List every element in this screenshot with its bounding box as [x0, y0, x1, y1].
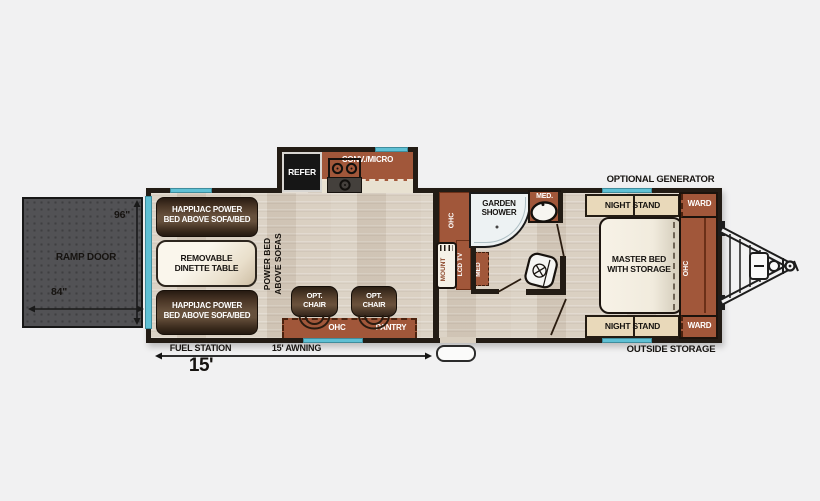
cooktop-base — [327, 177, 362, 193]
chair1-label-line1: OPT. — [292, 292, 337, 300]
kitchen-bottom-window — [303, 338, 363, 343]
awning-label: 15' AWNING — [254, 344, 339, 354]
optional-generator-label: OPTIONAL GENERATOR — [593, 175, 728, 185]
chair2-label-line2: CHAIR — [352, 301, 396, 309]
chair2-label-line1: OPT. — [352, 292, 396, 300]
wardrobe-top: WARD — [681, 194, 716, 218]
happijac-bed-bottom-label-line2: BED ABOVE SOFA/BED — [157, 312, 257, 321]
wardrobe-top-label: WARD — [683, 200, 716, 209]
shower-partition-wall-horizontal — [471, 289, 499, 294]
coupler-icon — [769, 261, 779, 271]
happijac-bed-bottom: HAPPIJAC POWER BED ABOVE SOFA/BED — [156, 290, 258, 335]
shower-partition-wall-vertical — [471, 246, 476, 294]
bedroom-bottom-window — [602, 338, 652, 343]
floorplan-canvas: RAMP DOOR 96" 84" REFER CONV./MICRO HAPP… — [0, 0, 820, 501]
optional-chair-1: OPT. CHAIR — [291, 286, 338, 317]
garden-shower-label-line2: SHOWER — [473, 209, 525, 218]
ramp-height-dimension: 96" — [96, 210, 130, 222]
dinette-label-line2: DINETTE TABLE — [158, 264, 255, 273]
night-stand-top: NIGHT STAND — [585, 194, 680, 217]
toilet-room-wall-horizontal — [526, 289, 566, 295]
night-stand-top-label: NIGHT STAND — [587, 201, 678, 210]
sink-wall — [558, 192, 563, 223]
lcd-tv-label: LCD TV — [457, 245, 470, 284]
fuel-station-label: FUEL STATION — [158, 344, 243, 354]
length-dimension-label: 15' — [176, 356, 226, 377]
outside-storage-label: OUTSIDE STORAGE — [606, 345, 736, 355]
refrigerator-label: REFER — [284, 168, 320, 177]
refrigerator: REFER — [282, 152, 322, 192]
night-stand-bottom-label: NIGHT STAND — [587, 322, 678, 331]
happijac-bed-top-label-line1: HAPPIJAC POWER — [157, 206, 257, 215]
power-bed-above-sofas-label: POWER BED ABOVE SOFAS — [262, 229, 286, 299]
wardrobe-bottom: WARD — [681, 315, 716, 337]
optional-chair-2: OPT. CHAIR — [351, 286, 397, 317]
slideout-window — [375, 147, 408, 152]
master-bed: MASTER BED WITH STORAGE — [599, 217, 683, 314]
chair1-label-line2: CHAIR — [292, 301, 337, 309]
happijac-bed-bottom-label-line1: HAPPIJAC POWER — [157, 302, 257, 311]
bathroom-ohc-label: OHC — [449, 201, 462, 241]
hitch-ball-icon — [786, 262, 795, 271]
entry-doorway-opening — [440, 337, 476, 343]
ramp-opening-strip — [145, 196, 152, 329]
ohc-kitchen-label: OHC — [324, 324, 350, 333]
sink-med-label: MED. — [530, 193, 559, 201]
garage-top-window — [170, 188, 212, 193]
master-bed-label-line1: MASTER BED — [601, 255, 677, 264]
trailer-hitch — [718, 221, 798, 310]
happijac-bed-top: HAPPIJAC POWER BED ABOVE SOFA/BED — [156, 197, 258, 237]
ramp-door-label: RAMP DOOR — [36, 252, 136, 263]
removable-dinette-table: REMOVABLE DINETTE TABLE — [156, 240, 257, 287]
bedroom-ohc-label: OHC — [683, 249, 696, 288]
bedroom-ohc-divider — [704, 218, 706, 313]
tv-mount-label: MOUNT — [440, 250, 453, 289]
pantry-label: PANTRY — [368, 324, 414, 333]
night-stand-bottom: NIGHT STAND — [585, 315, 680, 338]
bedroom-top-window — [602, 188, 652, 193]
ramp-width-dimension: 84" — [44, 287, 74, 299]
happijac-bed-top-label-line2: BED ABOVE SOFA/BED — [157, 216, 257, 225]
propane-tank-icon — [750, 253, 768, 279]
bathroom-sink-unit: MED. — [528, 190, 561, 223]
master-bed-label-line2: WITH STORAGE — [601, 265, 677, 274]
kitchen-lower-counter: OHC PANTRY — [282, 318, 417, 338]
entry-door-step — [436, 345, 476, 362]
power-bed-label-line2: ABOVE SOFAS — [273, 229, 284, 299]
power-bed-label-line1: POWER BED — [262, 229, 273, 299]
wardrobe-bottom-label: WARD — [683, 322, 716, 331]
dinette-label-line1: REMOVABLE — [158, 254, 255, 263]
bathroom-med-label: MED — [475, 250, 488, 289]
